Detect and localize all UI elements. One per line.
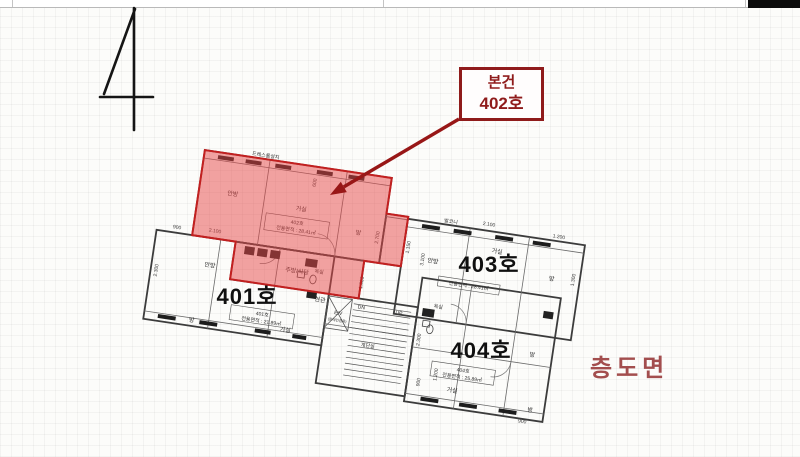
dim-label: 2.100 [482,221,495,229]
highlight-overlay-402 [187,150,414,304]
dim-label: 900 [415,377,422,386]
room-label: E/V [334,310,344,317]
dim-label: 1.300 [570,273,578,286]
building-plan: 드레스룸설치 안방 거실 방 주방/식당 안방 거실 방 발코니 안방 방 거실… [136,138,592,430]
dim-label: 900 [518,418,527,425]
floor-plan-drawing: 드레스룸설치 안방 거실 방 주방/식당 안방 거실 방 발코니 안방 방 거실… [0,0,800,457]
room-label: 욕실 [433,303,444,311]
room-label: 방 [529,350,536,359]
dim-label: 1.150 [405,240,413,253]
room-label: UP [395,310,403,317]
dim-label: 900 [173,224,182,231]
unit-label-401: 401호 [217,284,278,309]
room-label: 방 [527,406,534,415]
room-label: 현관 [314,295,327,305]
room-label: 계단실 [360,341,375,350]
unit-label-403: 403호 [459,252,520,277]
subject-callout-box: 본건 402호 [459,67,544,121]
room-label: 방 [548,274,555,283]
dim-label: 3.100 [419,253,427,266]
room-label: (장애인겸용) [327,316,346,324]
callout-line2: 402호 [479,93,523,114]
callout-line1: 본건 [488,74,516,93]
room-label: 안방 [427,256,440,266]
document-page: 드레스룸설치 안방 거실 방 주방/식당 안방 거실 방 발코니 안방 방 거실… [0,0,800,457]
room-label: DN [357,304,365,311]
dim-label: 2.300 [415,333,423,346]
plan-caption: 층도면 [590,348,668,383]
dim-label: 2.300 [153,263,161,276]
room-label: 거실 [279,325,291,335]
room-label: 방 [188,316,195,325]
dim-label: 1.200 [432,368,440,381]
floor-number-glyph [100,8,153,130]
unit-label-404: 404호 [451,338,512,363]
callout-arrow [330,119,459,195]
room-label: 안방 [204,260,217,270]
